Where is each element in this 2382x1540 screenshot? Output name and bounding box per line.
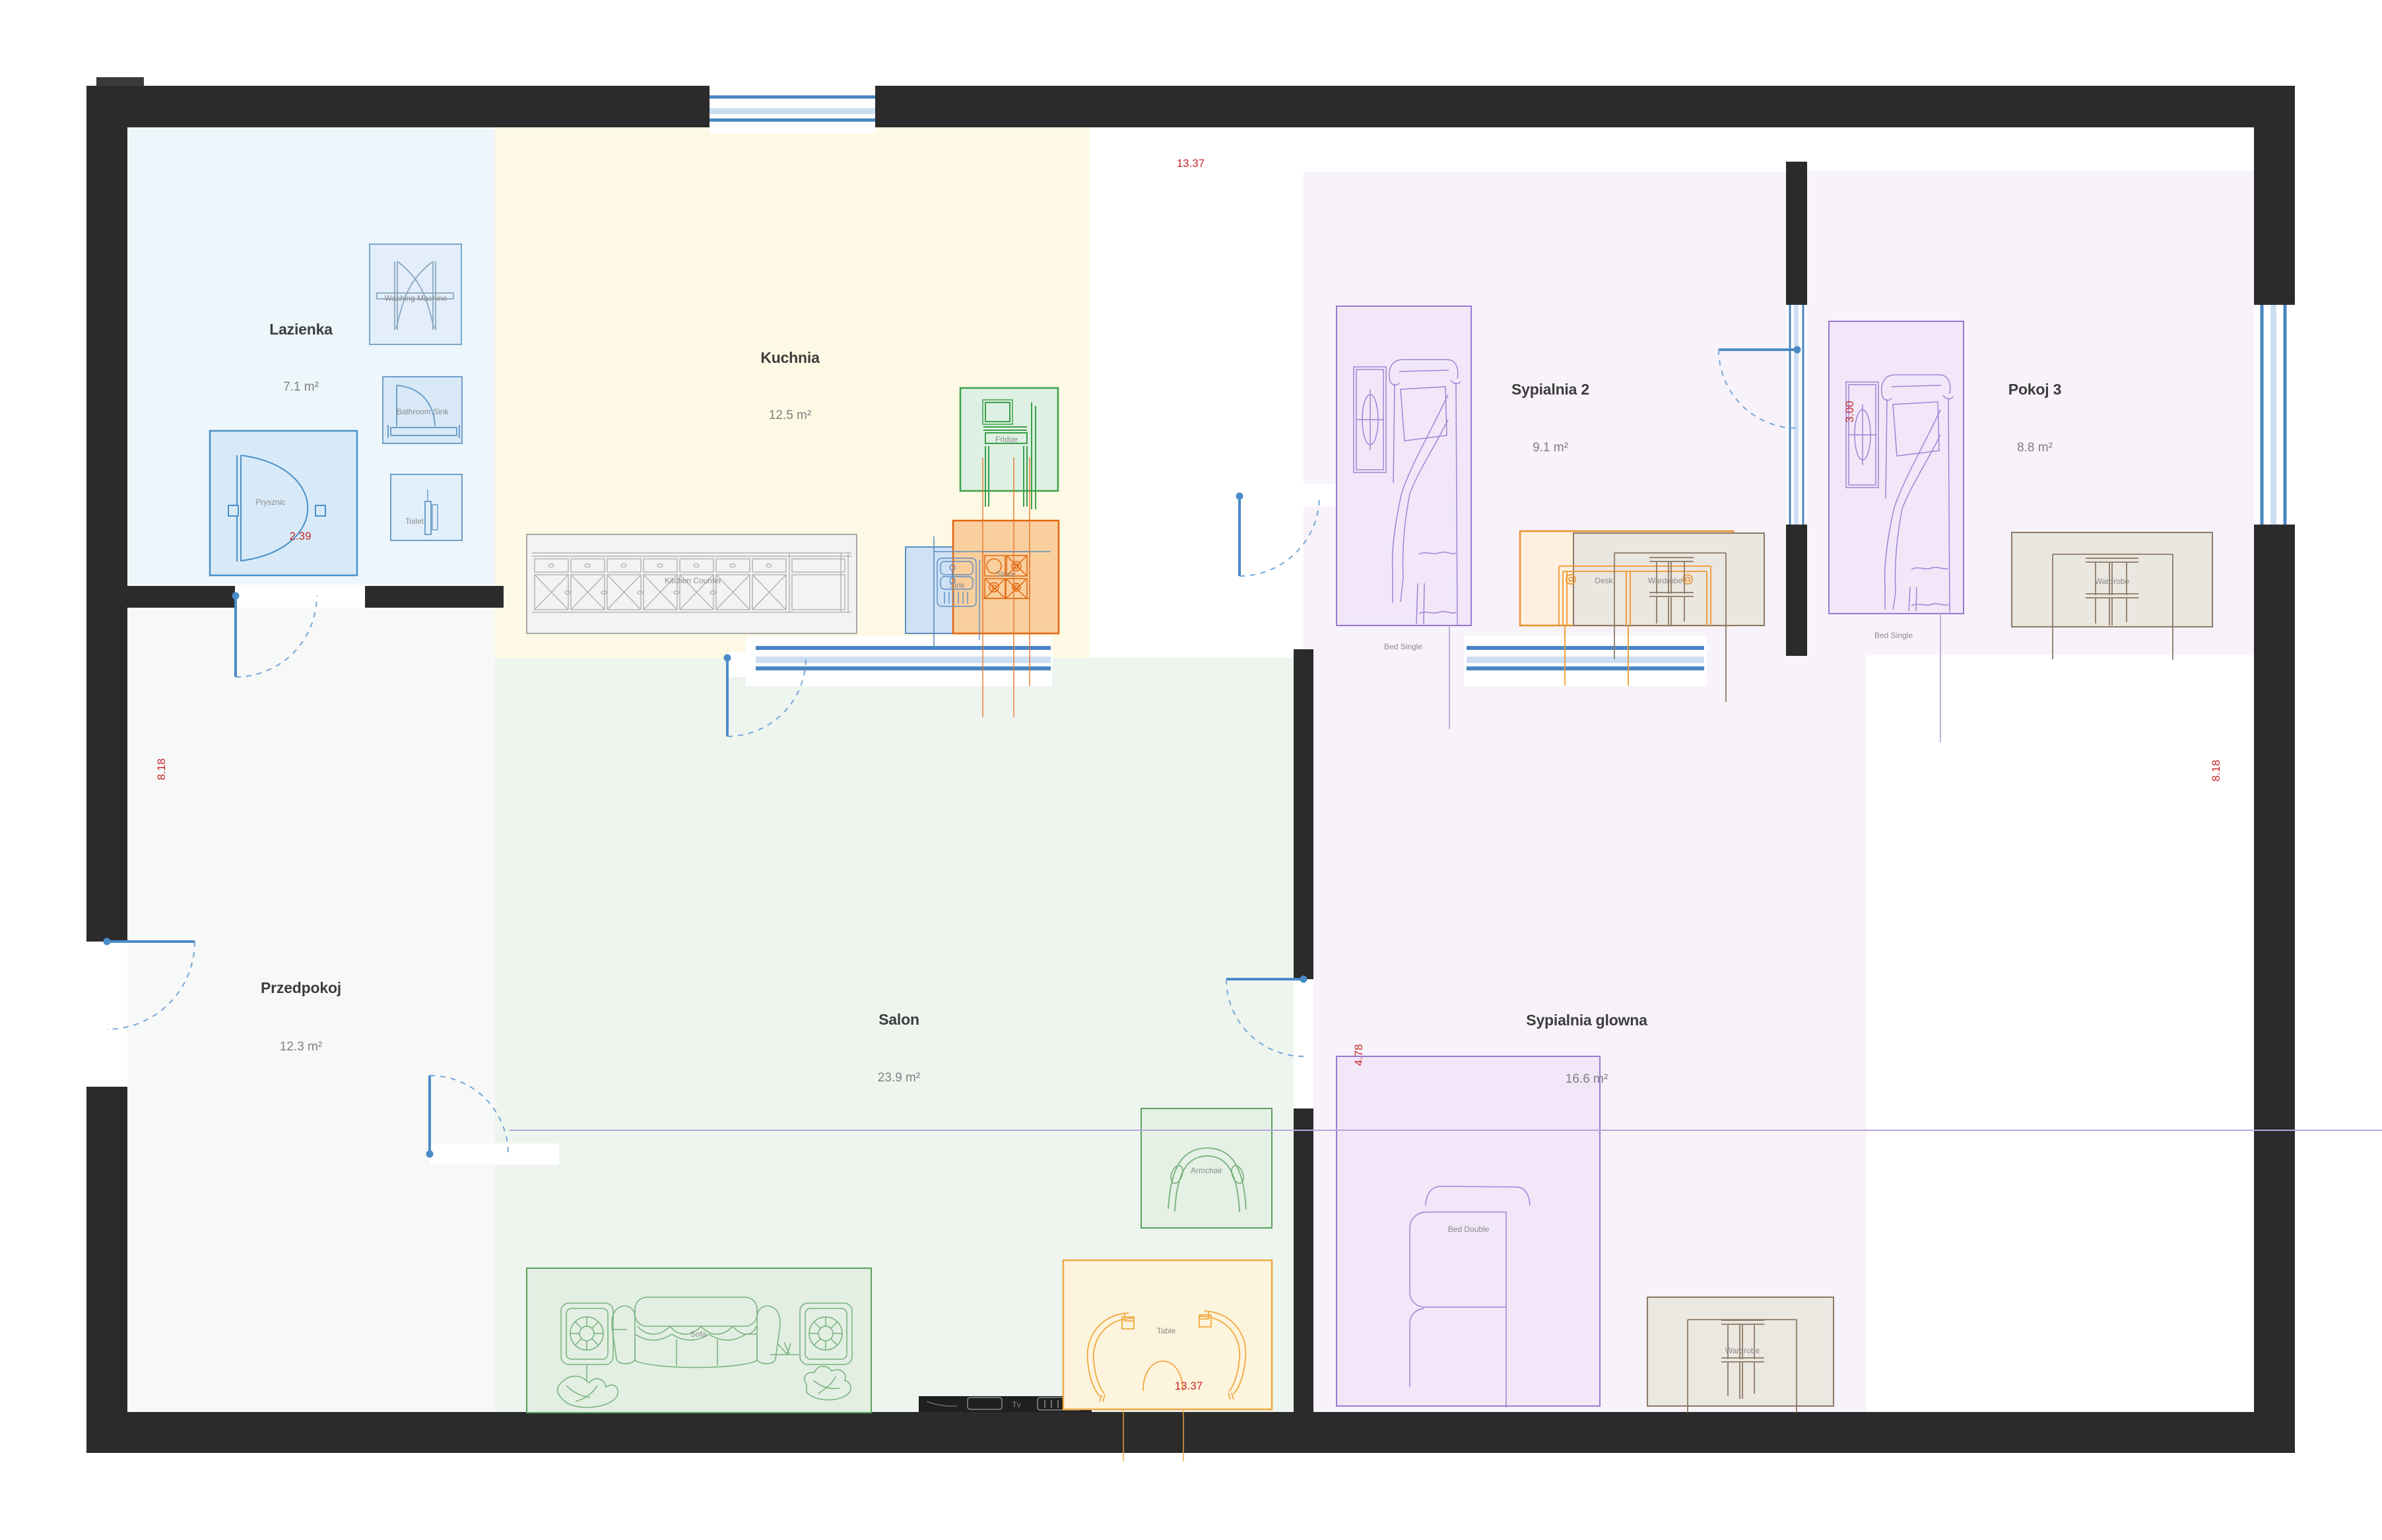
svg-text:Kitchen Counter: Kitchen Counter bbox=[665, 576, 721, 585]
svg-text:Sypialnia glowna: Sypialnia glowna bbox=[1526, 1011, 1647, 1029]
svg-text:Bed Double: Bed Double bbox=[1448, 1225, 1490, 1234]
svg-text:Wardrobe: Wardrobe bbox=[2095, 577, 2130, 586]
svg-text:12.3 m²: 12.3 m² bbox=[280, 1040, 322, 1054]
svg-text:Toilet: Toilet bbox=[405, 517, 424, 526]
svg-text:8.18: 8.18 bbox=[155, 758, 168, 780]
svg-text:12.5 m²: 12.5 m² bbox=[769, 408, 811, 422]
svg-text:23.9 m²: 23.9 m² bbox=[878, 1071, 920, 1085]
svg-text:Washing Machine: Washing Machine bbox=[385, 294, 447, 303]
svg-text:13.37: 13.37 bbox=[1177, 157, 1205, 170]
svg-text:Desk: Desk bbox=[1595, 576, 1613, 585]
svg-text:Bed Single: Bed Single bbox=[1384, 642, 1422, 651]
svg-text:Bathroom Sink: Bathroom Sink bbox=[397, 407, 449, 416]
svg-text:Stove: Stove bbox=[996, 569, 1016, 579]
svg-text:Wardrobe: Wardrobe bbox=[1648, 576, 1683, 585]
svg-text:16.6 m²: 16.6 m² bbox=[1566, 1072, 1608, 1086]
svg-text:7.1 m²: 7.1 m² bbox=[283, 380, 319, 394]
svg-text:8.8 m²: 8.8 m² bbox=[2017, 441, 2053, 455]
svg-text:Fridge: Fridge bbox=[995, 435, 1018, 444]
svg-text:3.00: 3.00 bbox=[1843, 401, 1856, 422]
svg-text:Bed Single: Bed Single bbox=[1874, 631, 1913, 640]
svg-text:Kuchnia: Kuchnia bbox=[760, 349, 820, 366]
svg-text:13.37: 13.37 bbox=[1175, 1380, 1203, 1392]
svg-text:8.18: 8.18 bbox=[2210, 759, 2222, 781]
svg-text:Przedpokoj: Przedpokoj bbox=[261, 979, 341, 996]
svg-text:Tv: Tv bbox=[1012, 1400, 1020, 1409]
svg-text:Salon: Salon bbox=[878, 1011, 919, 1028]
svg-text:Prysznic: Prysznic bbox=[255, 497, 285, 507]
svg-text:4.78: 4.78 bbox=[1352, 1044, 1365, 1066]
svg-text:2.39: 2.39 bbox=[289, 530, 311, 542]
svg-text:9.1 m²: 9.1 m² bbox=[1533, 441, 1568, 455]
svg-text:Wardrobe: Wardrobe bbox=[1725, 1346, 1760, 1355]
svg-text:Table: Table bbox=[1157, 1326, 1176, 1335]
svg-text:Sypialnia 2: Sypialnia 2 bbox=[1511, 381, 1589, 398]
svg-text:Sofa: Sofa bbox=[690, 1330, 707, 1339]
svg-text:Lazienka: Lazienka bbox=[269, 321, 333, 338]
svg-text:Armchair: Armchair bbox=[1191, 1166, 1222, 1175]
svg-text:Sink: Sink bbox=[949, 581, 965, 590]
svg-text:Pokoj 3: Pokoj 3 bbox=[2008, 381, 2061, 398]
